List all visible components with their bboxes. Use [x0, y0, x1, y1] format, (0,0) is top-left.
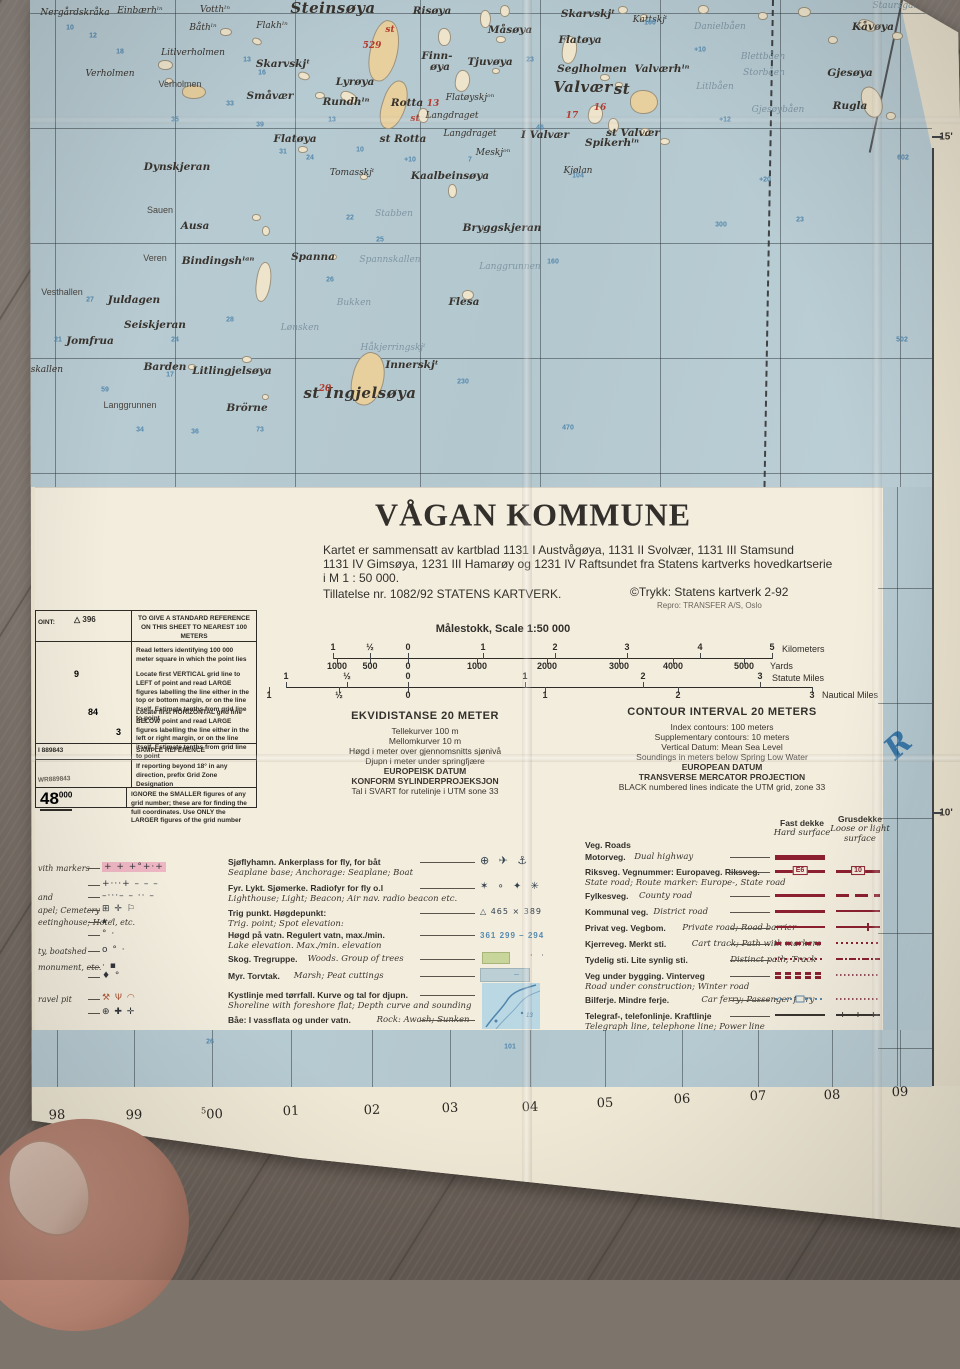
scale-bar-km [333, 658, 772, 659]
scale-miles-label: 1 [522, 671, 527, 681]
road-item-no: Motorveg. [585, 852, 626, 862]
grid-line-horizontal [878, 588, 932, 589]
contour-line: Index contours: 100 meters [670, 722, 773, 732]
road-item-en2: Telegraph line, telephone line; Power li… [585, 1022, 765, 1032]
map-label: Gjesøybåen [752, 105, 805, 115]
island [252, 214, 261, 221]
legend-leader [420, 913, 475, 914]
legend-leader [88, 967, 100, 968]
map-label: Vesthallen [41, 287, 83, 297]
refbox-note: If reporting beyond 18° in any direction… [136, 763, 252, 789]
road-item-no: Kommunal veg. [585, 907, 648, 917]
scale-km-label: ½ [366, 642, 374, 652]
map-label: Verholmen [158, 79, 201, 89]
legend-leader [88, 910, 100, 911]
seaplane-anchor-icons: ⊕ ✈ ⚓ [480, 854, 530, 867]
map-label: Steinsøya [290, 0, 375, 17]
depth-sounding: 7 [468, 157, 472, 164]
depth-sounding: 502 [896, 337, 908, 344]
map-label: Langdraget [425, 111, 478, 121]
road-item-no: Kjerreveg. Merkt sti. [585, 939, 666, 949]
scale-miles-label: ½ [343, 671, 351, 681]
road-item-en: District road [653, 907, 708, 917]
depth-sounding: +10 [404, 157, 416, 164]
grid-line-horizontal [30, 473, 932, 474]
legend-leader [730, 857, 770, 858]
legend-left-label: and [38, 893, 53, 902]
road-item-no: Tydelig sti. Lite synlig sti. [585, 955, 688, 965]
depth-sounding: 101 [504, 1044, 516, 1051]
legend-symbol: ⚒ Ψ ◠ [102, 993, 136, 1003]
depth-sounding: 31 [279, 149, 287, 156]
legend-symbol: o ° · [102, 945, 126, 955]
legend-leader [730, 976, 770, 977]
ekvidistanse-line: KONFORM SYLINDERPROJEKSJON [351, 776, 498, 786]
map-label: Bryggskjeran [463, 222, 542, 234]
road-item-no: Bilferje. Mindre ferje. [585, 995, 669, 1005]
depth-sounding: 18 [116, 49, 124, 56]
depth-sounding: 36 [191, 429, 199, 436]
island [798, 7, 811, 17]
woods-dots: · · [530, 951, 547, 960]
map-label: Skarvskjᵗ [256, 58, 310, 70]
map-label: Langdraget [443, 129, 496, 139]
grid-number: 07 [749, 1089, 766, 1105]
scale-nautical-label: 1 [542, 690, 547, 700]
woods-swatch [482, 952, 510, 964]
scale-km-label-unit: Kilometers [782, 644, 825, 654]
depth-sounding: 35 [171, 117, 179, 124]
red-elevation-number: 16 [594, 103, 607, 113]
map-label: Lyrøya [336, 76, 375, 88]
island [158, 60, 173, 70]
grid-reference-box: OINT:△ 396TO GIVE A STANDARD REFERENCE O… [35, 610, 257, 808]
depth-sounding: 23 [526, 57, 534, 64]
map-label: Nergårdskråka [40, 8, 109, 18]
depth-sounding: +12 [719, 117, 731, 124]
map-label: Flatøyskjᵒⁿ [446, 93, 495, 103]
scale-tick [772, 653, 773, 659]
grid-number: 06 [673, 1092, 690, 1108]
legend-item-en: Lake elevation. Max./min. elevation [228, 941, 382, 951]
depth-sounding: 13 [243, 57, 251, 64]
scale-km-label: 0 [405, 642, 410, 652]
margin-tick [932, 136, 942, 138]
contour-line: BLACK numbered lines indicate the UTM gr… [619, 782, 825, 792]
legend-leader [88, 897, 100, 898]
road-swatch-loose-pole: + [870, 1010, 877, 1019]
grid-line-vertical [897, 487, 898, 1086]
map-label: Tjuvøya [467, 56, 512, 68]
island [886, 112, 896, 120]
map-label: Tomasskjᵗ [330, 168, 374, 178]
grid-line-horizontal [30, 243, 932, 244]
road-swatch-loose [836, 998, 880, 1000]
depth-sounding: 39 [256, 122, 264, 129]
grid-line-vertical [134, 1030, 135, 1087]
scale-miles-label: 3 [757, 671, 762, 681]
depth-sounding: 33 [226, 101, 234, 108]
scale-yards-label: 0 [405, 661, 410, 671]
ekvidistanse-line: Tal i SVART for rutelinje i UTM sone 33 [352, 786, 499, 796]
map-label: st [385, 25, 394, 35]
grid-line-vertical [291, 1030, 292, 1087]
scale-tick [286, 682, 287, 688]
map-label: Innerskjᵗ [385, 359, 438, 371]
map-label: Jomfrua [66, 335, 114, 347]
map-label: Kaalbeinsøya [411, 170, 489, 182]
permit-line: Tillatelse nr. 1082/92 STATENS KARTVERK. [323, 587, 561, 601]
road-swatch-hard [775, 894, 825, 897]
road-swatch-loose-marker: 10 [851, 866, 865, 875]
depth-sounding: 26 [326, 277, 334, 284]
map-label: I Valvær [521, 129, 569, 141]
depth-sounding: 104 [572, 173, 584, 180]
map-label: st Rotta [380, 133, 427, 145]
scale-km-label: 1 [480, 642, 485, 652]
island [828, 36, 838, 44]
repro-credit: Repro: TRANSFER A/S, Oslo [657, 601, 762, 610]
legend-leader [88, 977, 100, 978]
folded-paper-map: R VÅGAN KOMMUNE Kartet er sammensatt av … [30, 0, 960, 1245]
road-swatch-hard [775, 855, 825, 860]
legend-item-en: Marsh; Peat cuttings [294, 971, 384, 981]
scale-tick [643, 682, 644, 688]
scale-yards-label: 5000 [734, 661, 754, 671]
scale-yards-label: 3000 [609, 661, 629, 671]
road-swatch-loose [836, 958, 880, 960]
island [262, 226, 270, 236]
legend-leader [420, 976, 475, 977]
map-label: Langgrunnen [479, 262, 540, 272]
map-label: Stabben [375, 209, 413, 219]
scale-km-label: 1 [330, 642, 335, 652]
grid-line-vertical [900, 1030, 901, 1087]
legend-left-label: eetinghouse; Hotel, etc. [38, 918, 135, 927]
road-item-no: Telegraf-, telefonlinje. Kraftlinje [585, 1011, 711, 1021]
map-label: Juldagen [108, 294, 160, 306]
depth-sounding: 230 [457, 379, 469, 386]
legend-leader [730, 872, 770, 873]
road-swatch-hard-boat [796, 996, 805, 1003]
road-swatch-hard [775, 976, 825, 979]
legend-leader [420, 1020, 475, 1021]
legend-item-no: Høgd på vatn. Regulert vatn, max./min. [228, 930, 385, 940]
refbox-header: TO GIVE A STANDARD REFERENCE ON THIS SHE… [136, 615, 252, 641]
legend-leader [88, 1013, 100, 1014]
legend-leader [730, 896, 770, 897]
refbox-corner-symbol: △ 396 [74, 615, 96, 626]
depth-sounding: 13 [328, 117, 336, 124]
map-label: Dynskjeran [144, 161, 210, 173]
road-swatch-hard [775, 958, 825, 960]
legend-item-en: Seaplane base; Anchorage: Seaplane; Boat [228, 868, 413, 878]
composition-line-3: i M 1 : 50 000. [323, 571, 399, 585]
grid-number: 01 [282, 1104, 299, 1120]
grid-number: 08 [823, 1088, 840, 1104]
map-label: Bukken [337, 298, 371, 308]
depth-sounding: 26 [206, 1039, 214, 1046]
depth-sounding: 16 [258, 70, 266, 77]
legend-item-no: Skog. Tregruppe. [228, 954, 297, 964]
grid-line-vertical [832, 1030, 833, 1087]
ekvidistanse-line: EUROPEISK DATUM [384, 766, 467, 776]
refbox-line [126, 787, 127, 807]
depth-sounding: 46 [536, 125, 544, 132]
island [220, 28, 232, 36]
lighthouse-beacon-icons: ✶ ∘ ✦ ✳ [480, 881, 542, 892]
scale-km-label: 3 [624, 642, 629, 652]
map-label: Valværhˡⁿ [635, 63, 690, 75]
legend-leader [420, 862, 475, 863]
legend-leader [88, 868, 100, 869]
legend-left-label: ravel pit [38, 995, 72, 1004]
refbox-line [131, 743, 132, 759]
scale-km-label: 5 [769, 642, 774, 652]
contour-heading: CONTOUR INTERVAL 20 METERS [627, 706, 816, 718]
map-label: Einbærhˡⁿ [117, 6, 162, 16]
map-label: Seiskjeran [124, 319, 186, 331]
map-label: Rundhˡⁿ [323, 96, 370, 108]
legend-leader [88, 922, 100, 923]
map-label: Ausa [181, 220, 210, 232]
lake-elevation-values: 361 299 – 294 [480, 931, 544, 940]
map-label: Flesa [449, 296, 480, 308]
refbox-wr: WR889843 [38, 775, 71, 785]
map-label: Verholmen [85, 69, 134, 79]
road-item-en2: State road; Route marker: Europe-, State… [585, 878, 786, 888]
map-label: Litlingjelsøya [192, 365, 271, 377]
depth-sounding: 160 [644, 20, 656, 27]
grid-line-horizontal [30, 358, 932, 359]
depth-sounding: +20 [759, 177, 771, 184]
map-label: Skarvskjᵗ [561, 8, 615, 20]
island [660, 138, 670, 145]
map-label: Småvær [247, 90, 294, 102]
red-elevation-number: 529 [363, 41, 382, 51]
scale-km-label: 4 [697, 642, 702, 652]
road-item-en: Dual highway [634, 852, 693, 862]
legend-symbol: · ▪ [102, 961, 117, 971]
road-swatch-loose [836, 942, 880, 944]
refbox-number: 3 [116, 727, 121, 737]
refbox-sample-value: I 889843 [38, 747, 63, 756]
legend-left-label: ty, boatshed [38, 947, 87, 956]
legend-item-no: Fyr. Lykt. Sjømerke. Radiofyr for fly o.… [228, 883, 383, 893]
scale-nautical-label: ½ [335, 690, 343, 700]
ekvidistanse-line: Tellekurver 100 m [391, 726, 458, 736]
road-item-en2: Road under construction; Winter road [585, 982, 749, 992]
road-swatch-loose [836, 894, 880, 897]
margin-tick [932, 812, 942, 814]
legend-leader [88, 935, 100, 936]
scale-nautical-label-unit: Nautical Miles [822, 690, 878, 700]
ekvidistanse-line: Mellomkurver 10 m [389, 736, 461, 746]
legend-item-no: Båe: I vassflata og under vatn. [228, 1015, 351, 1025]
refbox-sample-label: SAMPLE REFERENCE [136, 747, 205, 756]
grid-line-vertical [57, 1030, 58, 1087]
map-label: Flatøya [558, 34, 601, 46]
road-swatch-loose [836, 974, 880, 976]
depth-sounding: 23 [796, 217, 804, 224]
red-elevation-number: 20 [319, 384, 332, 394]
island [492, 68, 500, 74]
legend-item-en: Trig. point; Spot elevation: [228, 919, 344, 929]
grid-number: 09 [891, 1085, 908, 1101]
scale-nautical-label: 0 [405, 690, 410, 700]
map-label: Brörne [226, 402, 267, 414]
road-item-en: County road [639, 891, 692, 901]
depth-sounding: 22 [346, 215, 354, 222]
island [618, 6, 628, 14]
red-elevation-number: 13 [427, 99, 440, 109]
legend-left-label: vith markers [38, 864, 90, 873]
map-label: Bindingshˡᵃⁿ [182, 255, 255, 267]
island [448, 184, 457, 198]
scale-miles-label-unit: Statute Miles [772, 673, 824, 683]
depth-sounding: 25 [376, 237, 384, 244]
scale-tick [333, 653, 334, 659]
scale-miles-label: 1 [283, 671, 288, 681]
legend-head-loose: GrusdekkeLoose or lightsurface [830, 814, 890, 845]
map-label: Spannskallen [359, 255, 420, 265]
road-swatch-loose [836, 926, 880, 928]
depth-sounding: 21 [54, 337, 62, 344]
contour-line: TRANSVERSE MERCATOR PROJECTION [639, 772, 805, 782]
map-label: Litlbåen [696, 82, 734, 92]
legend-symbol: + + +°+·+ [102, 862, 166, 872]
map-label: Sauen [147, 205, 173, 215]
island [630, 90, 658, 114]
grid-line-vertical [530, 1030, 531, 1087]
map-label: Båthˡⁿ [189, 23, 216, 33]
refbox-line [131, 759, 132, 787]
scale-tick [555, 653, 556, 659]
legend-symbol: ▴ · [102, 916, 115, 926]
legend-item-no: Myr. Torvtak. [228, 971, 280, 981]
grid-number: 05 [596, 1096, 613, 1112]
grid-line-vertical [682, 1030, 683, 1087]
legend-leader [88, 885, 100, 886]
depth-sounding: 24 [171, 337, 179, 344]
refbox-ignore: IGNORE the SMALLER figures of any grid n… [131, 791, 252, 826]
legend-roads-section: Veg. Roads [585, 840, 631, 850]
contour-line: Vertical Datum: Mean Sea Level [661, 742, 782, 752]
map-label: Spanna [291, 251, 335, 263]
map-label: Votthˡⁿ [200, 5, 230, 15]
map-label: Rugla [833, 100, 868, 112]
scale-tick [525, 682, 526, 688]
refbox-corner: OINT: [38, 619, 55, 628]
map-label: Kåvøya [852, 21, 894, 33]
svg-text:13: 13 [526, 1013, 533, 1019]
legend-leader [420, 959, 475, 960]
scale-yards-label: 500 [362, 661, 377, 671]
legend-leader [730, 928, 770, 929]
legend-leader [730, 1000, 770, 1001]
scale-caption: Målestokk, Scale 1:50 000 [436, 623, 571, 635]
legend-item-en: Lighthouse; Light; Beacon; Air nav. radi… [228, 894, 457, 904]
depth-sounding: 10 [356, 147, 364, 154]
road-swatch-loose-pole: + [855, 1010, 862, 1019]
marsh-marks: ᠆᠆ [514, 968, 519, 979]
legend-item-en: Woods. Group of trees [308, 954, 404, 964]
road-swatch-loose-pole: + [839, 1010, 846, 1019]
legend-leader [420, 995, 475, 996]
scale-tick [627, 653, 628, 659]
map-label: Seglholmen [557, 63, 627, 75]
scale-yards-label: 1000 [327, 661, 347, 671]
grid-line-vertical [758, 1030, 759, 1087]
map-label: Spikerhˡⁿ [585, 137, 639, 149]
road-swatch-loose [836, 910, 880, 912]
thumb-holding-map [0, 1080, 250, 1310]
depth-sounding: 602 [897, 155, 909, 162]
legend-symbol: ♦ ° [102, 971, 120, 981]
island [758, 12, 768, 20]
map-label: Staursgard [872, 1, 923, 11]
map-neatline-right [932, 148, 934, 1086]
island [438, 28, 451, 46]
shoreline-swatch: 13 [482, 983, 540, 1029]
right-margin [932, 148, 960, 1086]
legend-symbol: ° · [102, 929, 115, 939]
island [242, 356, 252, 363]
map-label: Gjesøya [827, 67, 872, 79]
scale-nautical-label: 2 [675, 690, 680, 700]
legend-leader [88, 951, 100, 952]
scale-tick [700, 653, 701, 659]
depth-sounding: 24 [306, 155, 314, 162]
scale-yards-label: 4000 [663, 661, 683, 671]
scale-km-label: 2 [552, 642, 557, 652]
depth-sounding: 59 [101, 387, 109, 394]
island [298, 146, 308, 153]
map-label: Rotta [391, 97, 423, 109]
scale-nautical-label: 3 [809, 690, 814, 700]
map-label: gskallen [25, 365, 63, 375]
road-item-no: Fylkesveg. [585, 891, 628, 901]
grid-line-horizontal [878, 703, 932, 704]
legend-leader [730, 1016, 770, 1017]
scale-miles-label: 0 [405, 671, 410, 681]
map-label: Barden [144, 361, 187, 373]
legend-leader [730, 912, 770, 913]
road-swatch-hard [775, 910, 825, 913]
legend-leader [730, 944, 770, 945]
refbox-number: 9 [74, 669, 79, 679]
map-label: st [410, 114, 419, 124]
composition-line-2: 1131 IV Gimsøya, 1231 III Hamarøy og 123… [323, 557, 832, 571]
ekvidistanse-heading: EKVIDISTANSE 20 METER [351, 710, 499, 722]
legend-symbol: ⊞ ✛ ⚐ [102, 904, 136, 914]
depth-sounding: 28 [226, 317, 234, 324]
ekvidistanse-line: Høgd i meter over gjennomsnitts sjønivå [349, 746, 501, 756]
legend-symbol: ⊕ ✚ ✛ [102, 1007, 135, 1017]
grid-line-vertical [605, 1030, 606, 1087]
map-label: øya [430, 61, 450, 73]
depth-sounding: 34 [136, 427, 144, 434]
refbox-number: 84 [88, 707, 98, 717]
contour-line: Supplementary contours: 10 meters [655, 732, 790, 742]
scale-yards-label: 2000 [537, 661, 557, 671]
legend-item-no: Kystlinje med tørrfall. Kurve og tal for… [228, 990, 408, 1000]
refbox-step1: Read letters identifying 100 000 meter s… [136, 647, 252, 665]
grid-number: 03 [441, 1101, 458, 1117]
refbox-line [131, 611, 132, 743]
legend-symbol: –···– – ·· – [102, 891, 155, 901]
road-swatch-hard-marker: E6 [793, 866, 808, 875]
